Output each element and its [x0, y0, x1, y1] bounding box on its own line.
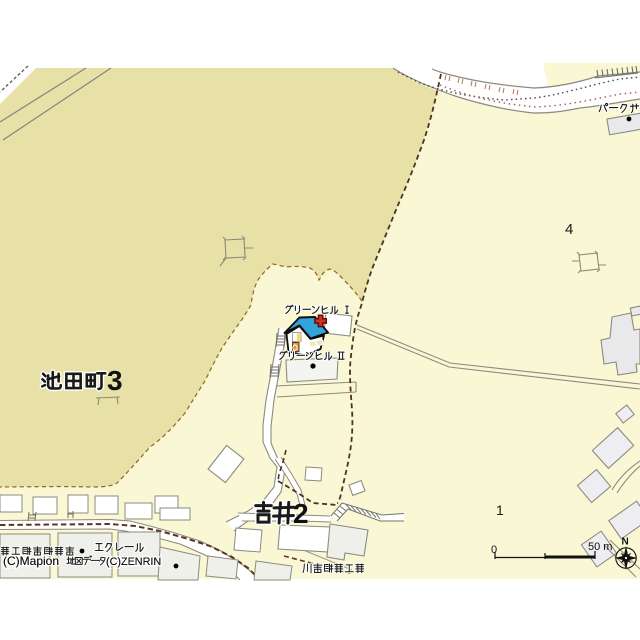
svg-text:(C)Mapion: (C)Mapion	[3, 554, 59, 568]
svg-text:4: 4	[565, 221, 573, 238]
svg-text:2: 2	[293, 498, 309, 529]
svg-text:1: 1	[496, 502, 504, 518]
svg-text:(C)ZENRIN: (C)ZENRIN	[106, 556, 161, 568]
svg-text:N: N	[622, 537, 629, 548]
svg-text:3: 3	[107, 365, 123, 396]
svg-text:50 m: 50 m	[588, 541, 612, 553]
svg-text:0: 0	[491, 544, 497, 556]
